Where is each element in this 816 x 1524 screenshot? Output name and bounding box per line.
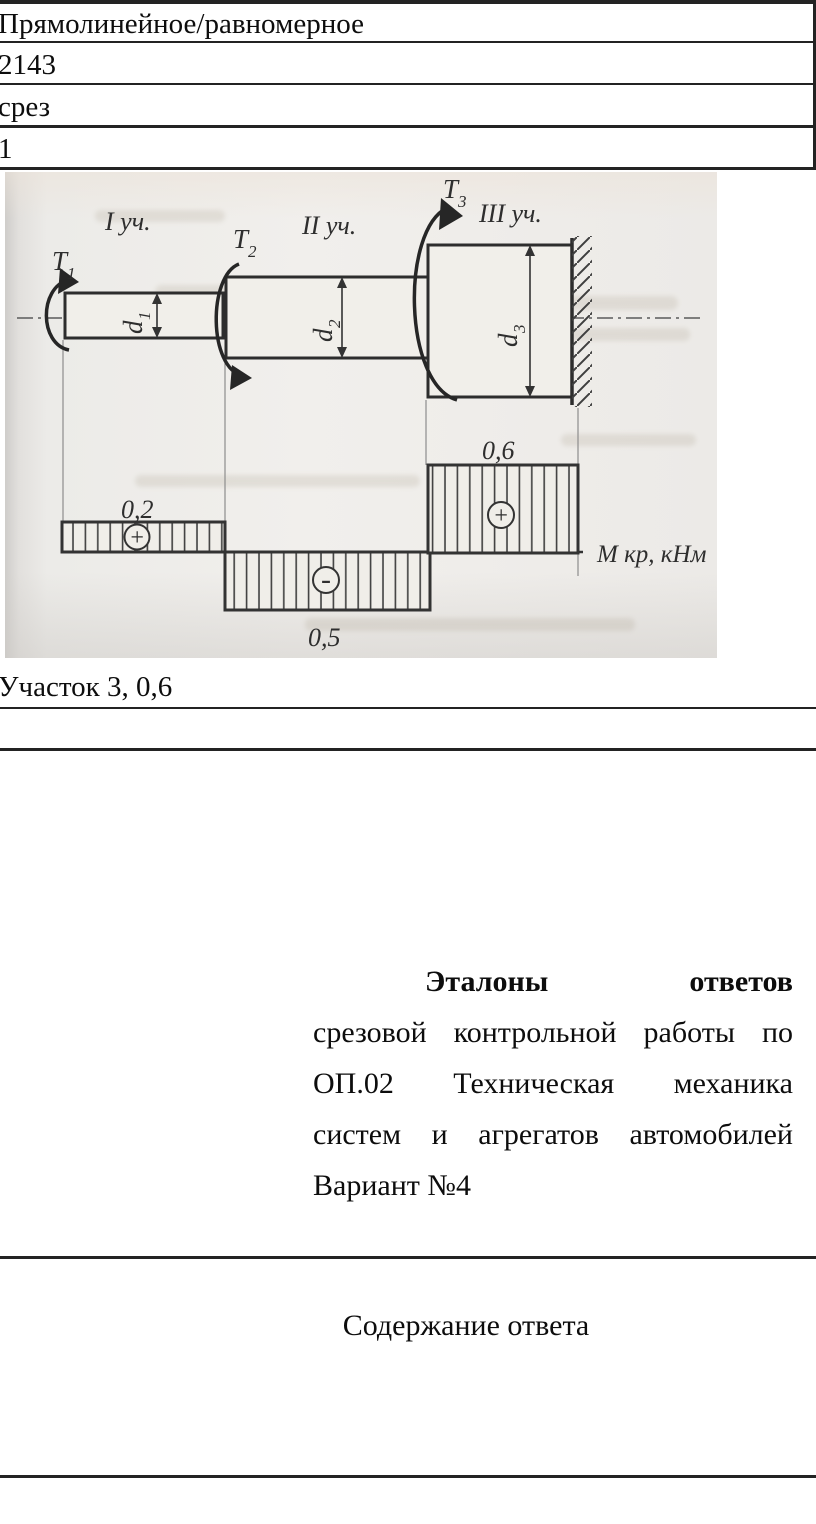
answers-line-2: срезовой контрольной работы по <box>313 1007 793 1058</box>
svg-text:d: d <box>308 328 338 342</box>
diagram-axis-label: М кр, кНм <box>596 541 707 568</box>
torque-sub-3: 3 <box>457 192 467 211</box>
table-cell-motion-type: Прямолинейное/равномерное <box>0 6 364 42</box>
content-header: Содержание ответа <box>166 1306 766 1346</box>
sign-minus-2: - <box>321 563 331 596</box>
diagram-value-3: 0,6 <box>482 436 515 465</box>
section-label-1: I уч. <box>104 207 151 236</box>
answers-title-line: Эталоны ответов <box>313 956 793 1007</box>
fixed-support-wall <box>572 236 592 407</box>
shaft-section-2 <box>226 277 428 358</box>
svg-text:2: 2 <box>325 319 344 328</box>
shaft-torque-diagram: + - + I уч. II уч. III уч. T 1 T 2 T 3 d… <box>5 172 717 658</box>
table-border-line <box>0 748 816 751</box>
sign-plus-1: + <box>129 525 145 551</box>
table-border-line <box>0 1475 816 1478</box>
table-border-line <box>0 83 816 85</box>
scanned-figure-photo: + - + I уч. II уч. III уч. T 1 T 2 T 3 d… <box>5 172 717 658</box>
document-page: Прямолинейное/равномерное 2143 срез 1 Уч… <box>0 0 816 1524</box>
table-border-line <box>0 1256 816 1259</box>
answers-line-3: ОП.02 Техническая механика <box>313 1058 793 1109</box>
table-border-line <box>0 125 816 128</box>
table-cell-code: 2143 <box>0 47 56 83</box>
diagram-value-2: 0,5 <box>308 623 341 652</box>
shaft-section-3 <box>428 245 572 397</box>
svg-text:d: d <box>493 333 523 347</box>
svg-text:1: 1 <box>135 312 154 321</box>
table-cell-shear: срез <box>0 89 50 125</box>
table-border-line <box>0 0 816 4</box>
answers-line-4: систем и агрегатов автомобилей <box>313 1109 793 1160</box>
table-border-line <box>0 167 816 170</box>
diagram-value-1: 0,2 <box>121 495 154 524</box>
table-cell-number: 1 <box>0 131 13 167</box>
torque-sub-1: 1 <box>67 264 76 283</box>
section-label-2: II уч. <box>301 211 356 240</box>
svg-text:3: 3 <box>510 325 529 335</box>
answers-title-block: Эталоны ответов срезовой контрольной раб… <box>313 956 793 1211</box>
sign-plus-3: + <box>493 503 509 529</box>
svg-text:d: d <box>118 320 148 334</box>
section-label-3: III уч. <box>478 199 542 228</box>
table-border-line <box>0 707 816 709</box>
torque-sub-2: 2 <box>248 242 257 261</box>
answers-variant-line: Вариант №4 <box>313 1160 793 1211</box>
table-cell-result: Участок 3, 0,6 <box>0 669 172 705</box>
